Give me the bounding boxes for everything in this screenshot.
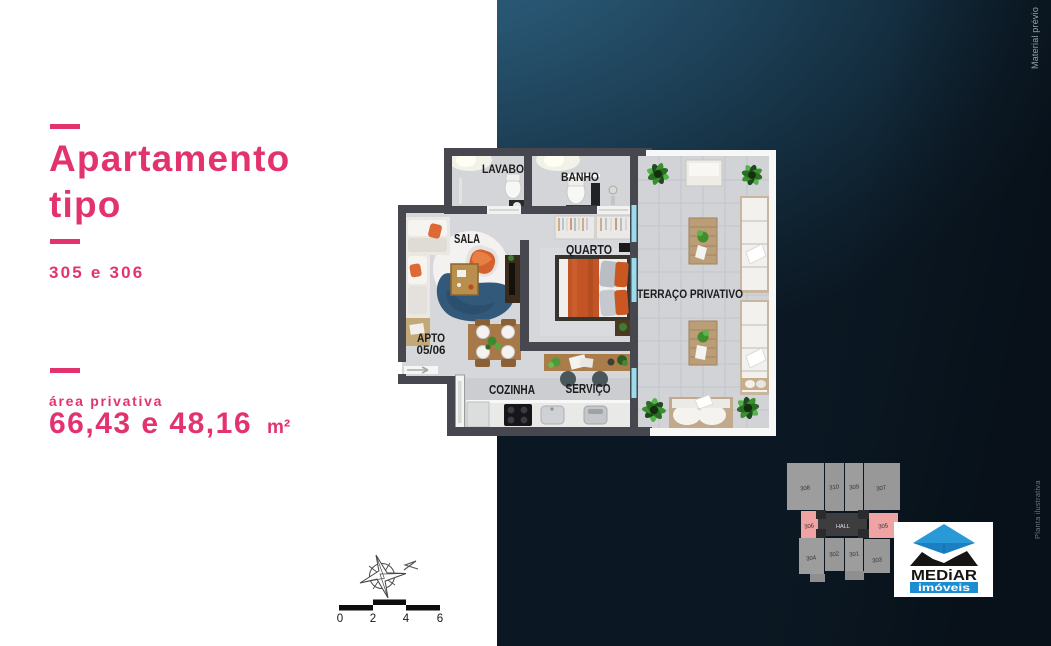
svg-text:LAVABO: LAVABO	[482, 162, 524, 176]
svg-text:2: 2	[370, 613, 376, 625]
svg-text:APTO: APTO	[417, 333, 445, 345]
svg-text:QUARTO: QUARTO	[566, 242, 612, 257]
svg-text:COZINHA: COZINHA	[489, 382, 535, 397]
svg-text:0: 0	[337, 613, 343, 625]
svg-text:05/06: 05/06	[417, 345, 446, 357]
svg-text:MEDiAR: MEDiAR	[911, 568, 978, 584]
svg-text:6: 6	[437, 613, 443, 625]
svg-text:4: 4	[403, 613, 410, 625]
svg-text:SALA: SALA	[454, 231, 480, 246]
svg-text:BANHO: BANHO	[561, 170, 599, 184]
svg-text:imóveis: imóveis	[918, 583, 971, 594]
svg-text:SERVIÇO: SERVIÇO	[566, 381, 611, 396]
svg-text:TERRAÇO PRIVATIVO: TERRAÇO PRIVATIVO	[637, 289, 743, 301]
svg-text:HALL: HALL	[836, 524, 851, 530]
